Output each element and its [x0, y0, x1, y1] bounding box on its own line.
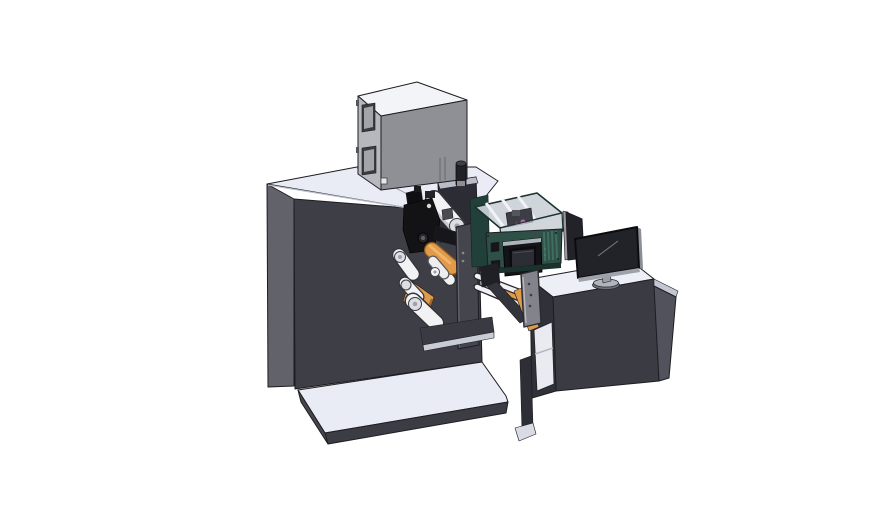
machine-left-face	[267, 184, 294, 387]
machine-top-box	[356, 82, 467, 190]
machine-assembly-drawing	[0, 0, 888, 522]
box-window-upper	[362, 103, 375, 132]
control-enclosure	[470, 193, 563, 287]
corner-plate	[381, 178, 387, 184]
hinge-mark	[356, 147, 359, 153]
cad-render-canvas	[0, 0, 888, 522]
bolt-head	[427, 204, 431, 208]
box-front-face	[381, 100, 467, 190]
hinge-mark	[356, 100, 359, 106]
desk-front-face	[553, 279, 659, 391]
stack-cylinder	[456, 161, 466, 190]
desk-shelf-opening	[534, 322, 554, 391]
box-window-lower	[362, 146, 376, 175]
